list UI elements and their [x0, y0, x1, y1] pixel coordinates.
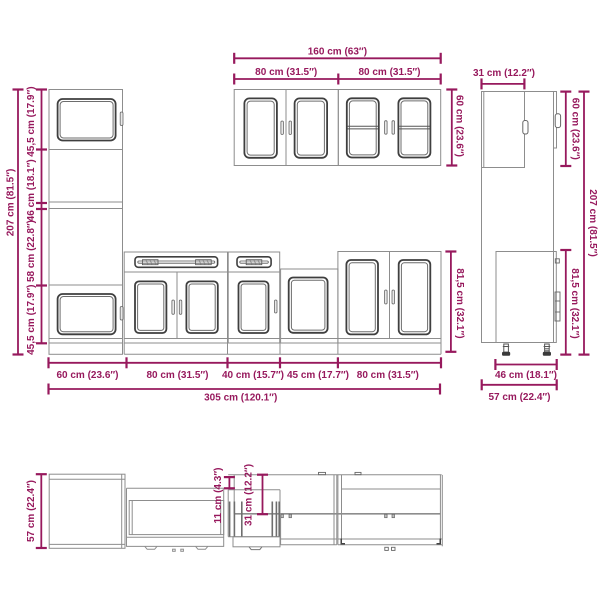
- svg-text:80 cm (31.5″): 80 cm (31.5″): [358, 67, 420, 78]
- svg-text:31 cm (12.2″): 31 cm (12.2″): [473, 68, 535, 79]
- svg-text:57 cm (22.4″): 57 cm (22.4″): [488, 392, 550, 403]
- svg-text:40 cm (15.7″): 40 cm (15.7″): [222, 370, 284, 381]
- svg-text:80 cm (31.5″): 80 cm (31.5″): [357, 370, 419, 381]
- svg-text:305 cm (120.1″): 305 cm (120.1″): [204, 392, 277, 403]
- svg-text:11 cm (4.3″): 11 cm (4.3″): [213, 468, 224, 524]
- svg-text:46 cm (18.1″): 46 cm (18.1″): [495, 370, 557, 381]
- svg-text:160 cm (63″): 160 cm (63″): [308, 47, 367, 58]
- svg-text:81,5 cm (32.1″): 81,5 cm (32.1″): [454, 268, 465, 338]
- svg-text:58 cm (22.8″): 58 cm (22.8″): [26, 220, 37, 282]
- svg-text:207 cm (81.5″): 207 cm (81.5″): [587, 189, 598, 257]
- svg-text:57 cm (22.4″): 57 cm (22.4″): [26, 480, 37, 542]
- svg-text:60 cm (23.6″): 60 cm (23.6″): [453, 95, 464, 157]
- svg-text:80 cm (31.5″): 80 cm (31.5″): [146, 370, 208, 381]
- svg-text:80 cm (31.5″): 80 cm (31.5″): [255, 67, 317, 78]
- svg-text:60 cm (23.6″): 60 cm (23.6″): [570, 98, 581, 160]
- svg-text:45 cm (17.7″): 45 cm (17.7″): [287, 370, 349, 381]
- svg-text:60 cm (23.6″): 60 cm (23.6″): [56, 370, 118, 381]
- svg-text:31 cm (12.2″): 31 cm (12.2″): [244, 464, 255, 526]
- svg-text:81,5 cm (32.1″): 81,5 cm (32.1″): [569, 268, 580, 338]
- svg-text:45,5 cm (17.9″): 45,5 cm (17.9″): [26, 86, 37, 156]
- svg-text:45,5 cm (17.9″): 45,5 cm (17.9″): [26, 285, 37, 355]
- svg-text:207 cm (81.5″): 207 cm (81.5″): [6, 169, 17, 237]
- svg-text:46 cm (18.1″): 46 cm (18.1″): [26, 159, 37, 221]
